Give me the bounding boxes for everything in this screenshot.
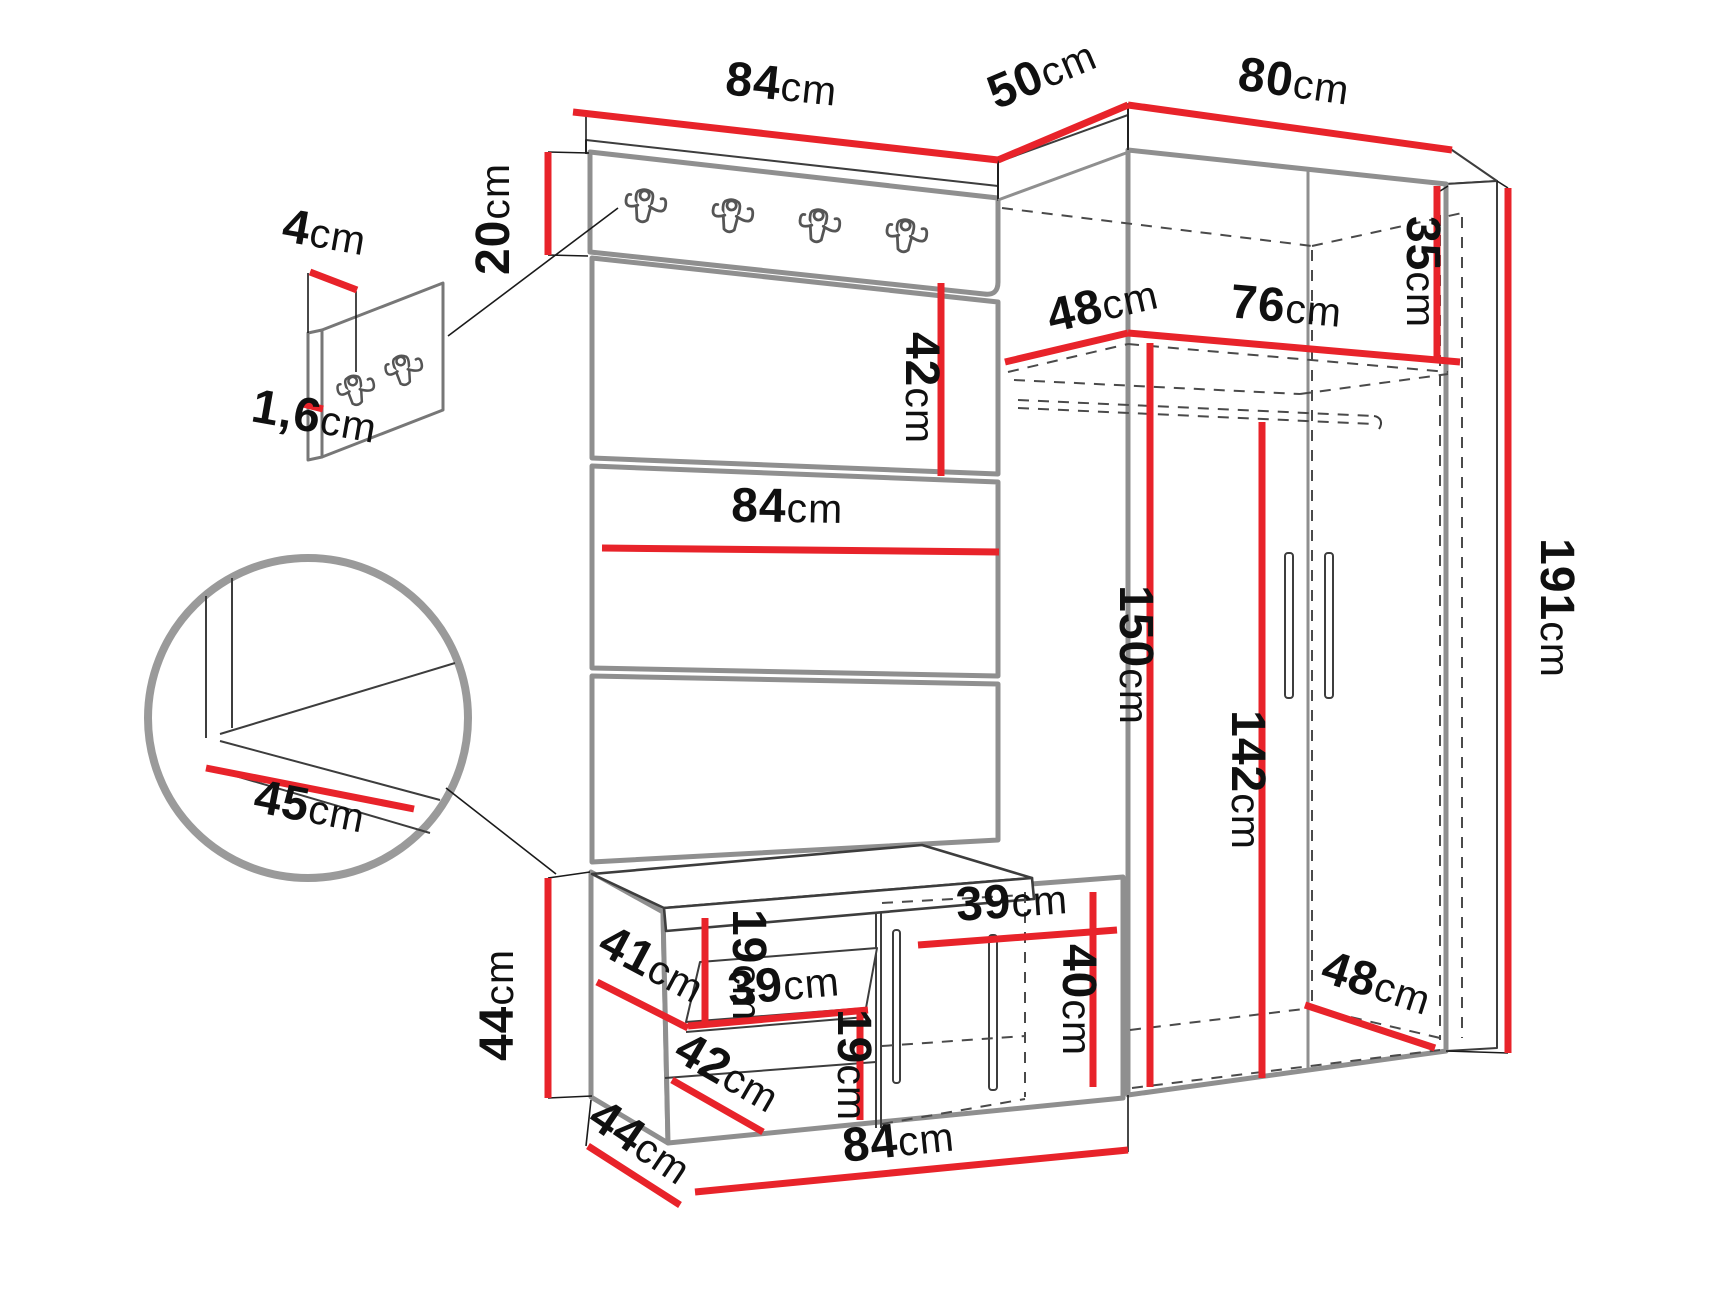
dim-label-40-right: 40cm: [1052, 944, 1105, 1056]
door-handle-icon: [1325, 553, 1333, 698]
dim-label-39-right: 39cm: [954, 871, 1069, 932]
dim-line-4-inset: [310, 272, 357, 290]
dim-label-84-panel: 84cm: [731, 479, 844, 534]
diagram-canvas: 84cm 50cm 80cm 20cm 4cm 1,6cm 42cm 84cm …: [0, 0, 1726, 1295]
door-handle-icon: [989, 935, 997, 1090]
dim-line-84-panel: [602, 548, 999, 552]
dim-label-4-inset: 4cm: [279, 199, 371, 266]
dim-label-142-wardrobe: 142cm: [1221, 710, 1274, 850]
door-handle-icon: [1285, 553, 1293, 698]
dim-label-50-top: 50cm: [980, 27, 1104, 120]
corner-strip-face: [998, 115, 1128, 200]
dim-label-19-lower: 19cm: [827, 1009, 880, 1121]
dim-label-150-wardrobe: 150cm: [1109, 585, 1162, 725]
wardrobe-right-side-face: [1446, 181, 1497, 1051]
dim-label-42-panel: 42cm: [895, 332, 948, 444]
wall-panel-segment-3: [592, 676, 998, 862]
corner-top-strip: [998, 115, 1128, 200]
furniture-dimension-drawing: 84cm 50cm 80cm 20cm 4cm 1,6cm 42cm 84cm …: [0, 0, 1726, 1295]
dim-label-44-bench-height: 44cm: [471, 949, 524, 1061]
dim-label-20-left: 20cm: [467, 163, 520, 275]
dim-label-84-top: 84cm: [723, 52, 840, 116]
dim-label-35-shelf: 35cm: [1396, 216, 1449, 328]
door-handle-icon: [893, 930, 900, 1083]
dim-label-84-bottom: 84cm: [840, 1108, 957, 1172]
dim-label-191-height: 191cm: [1530, 538, 1583, 678]
detail-leader-line: [446, 788, 556, 874]
dim-label-80-top: 80cm: [1235, 48, 1353, 116]
